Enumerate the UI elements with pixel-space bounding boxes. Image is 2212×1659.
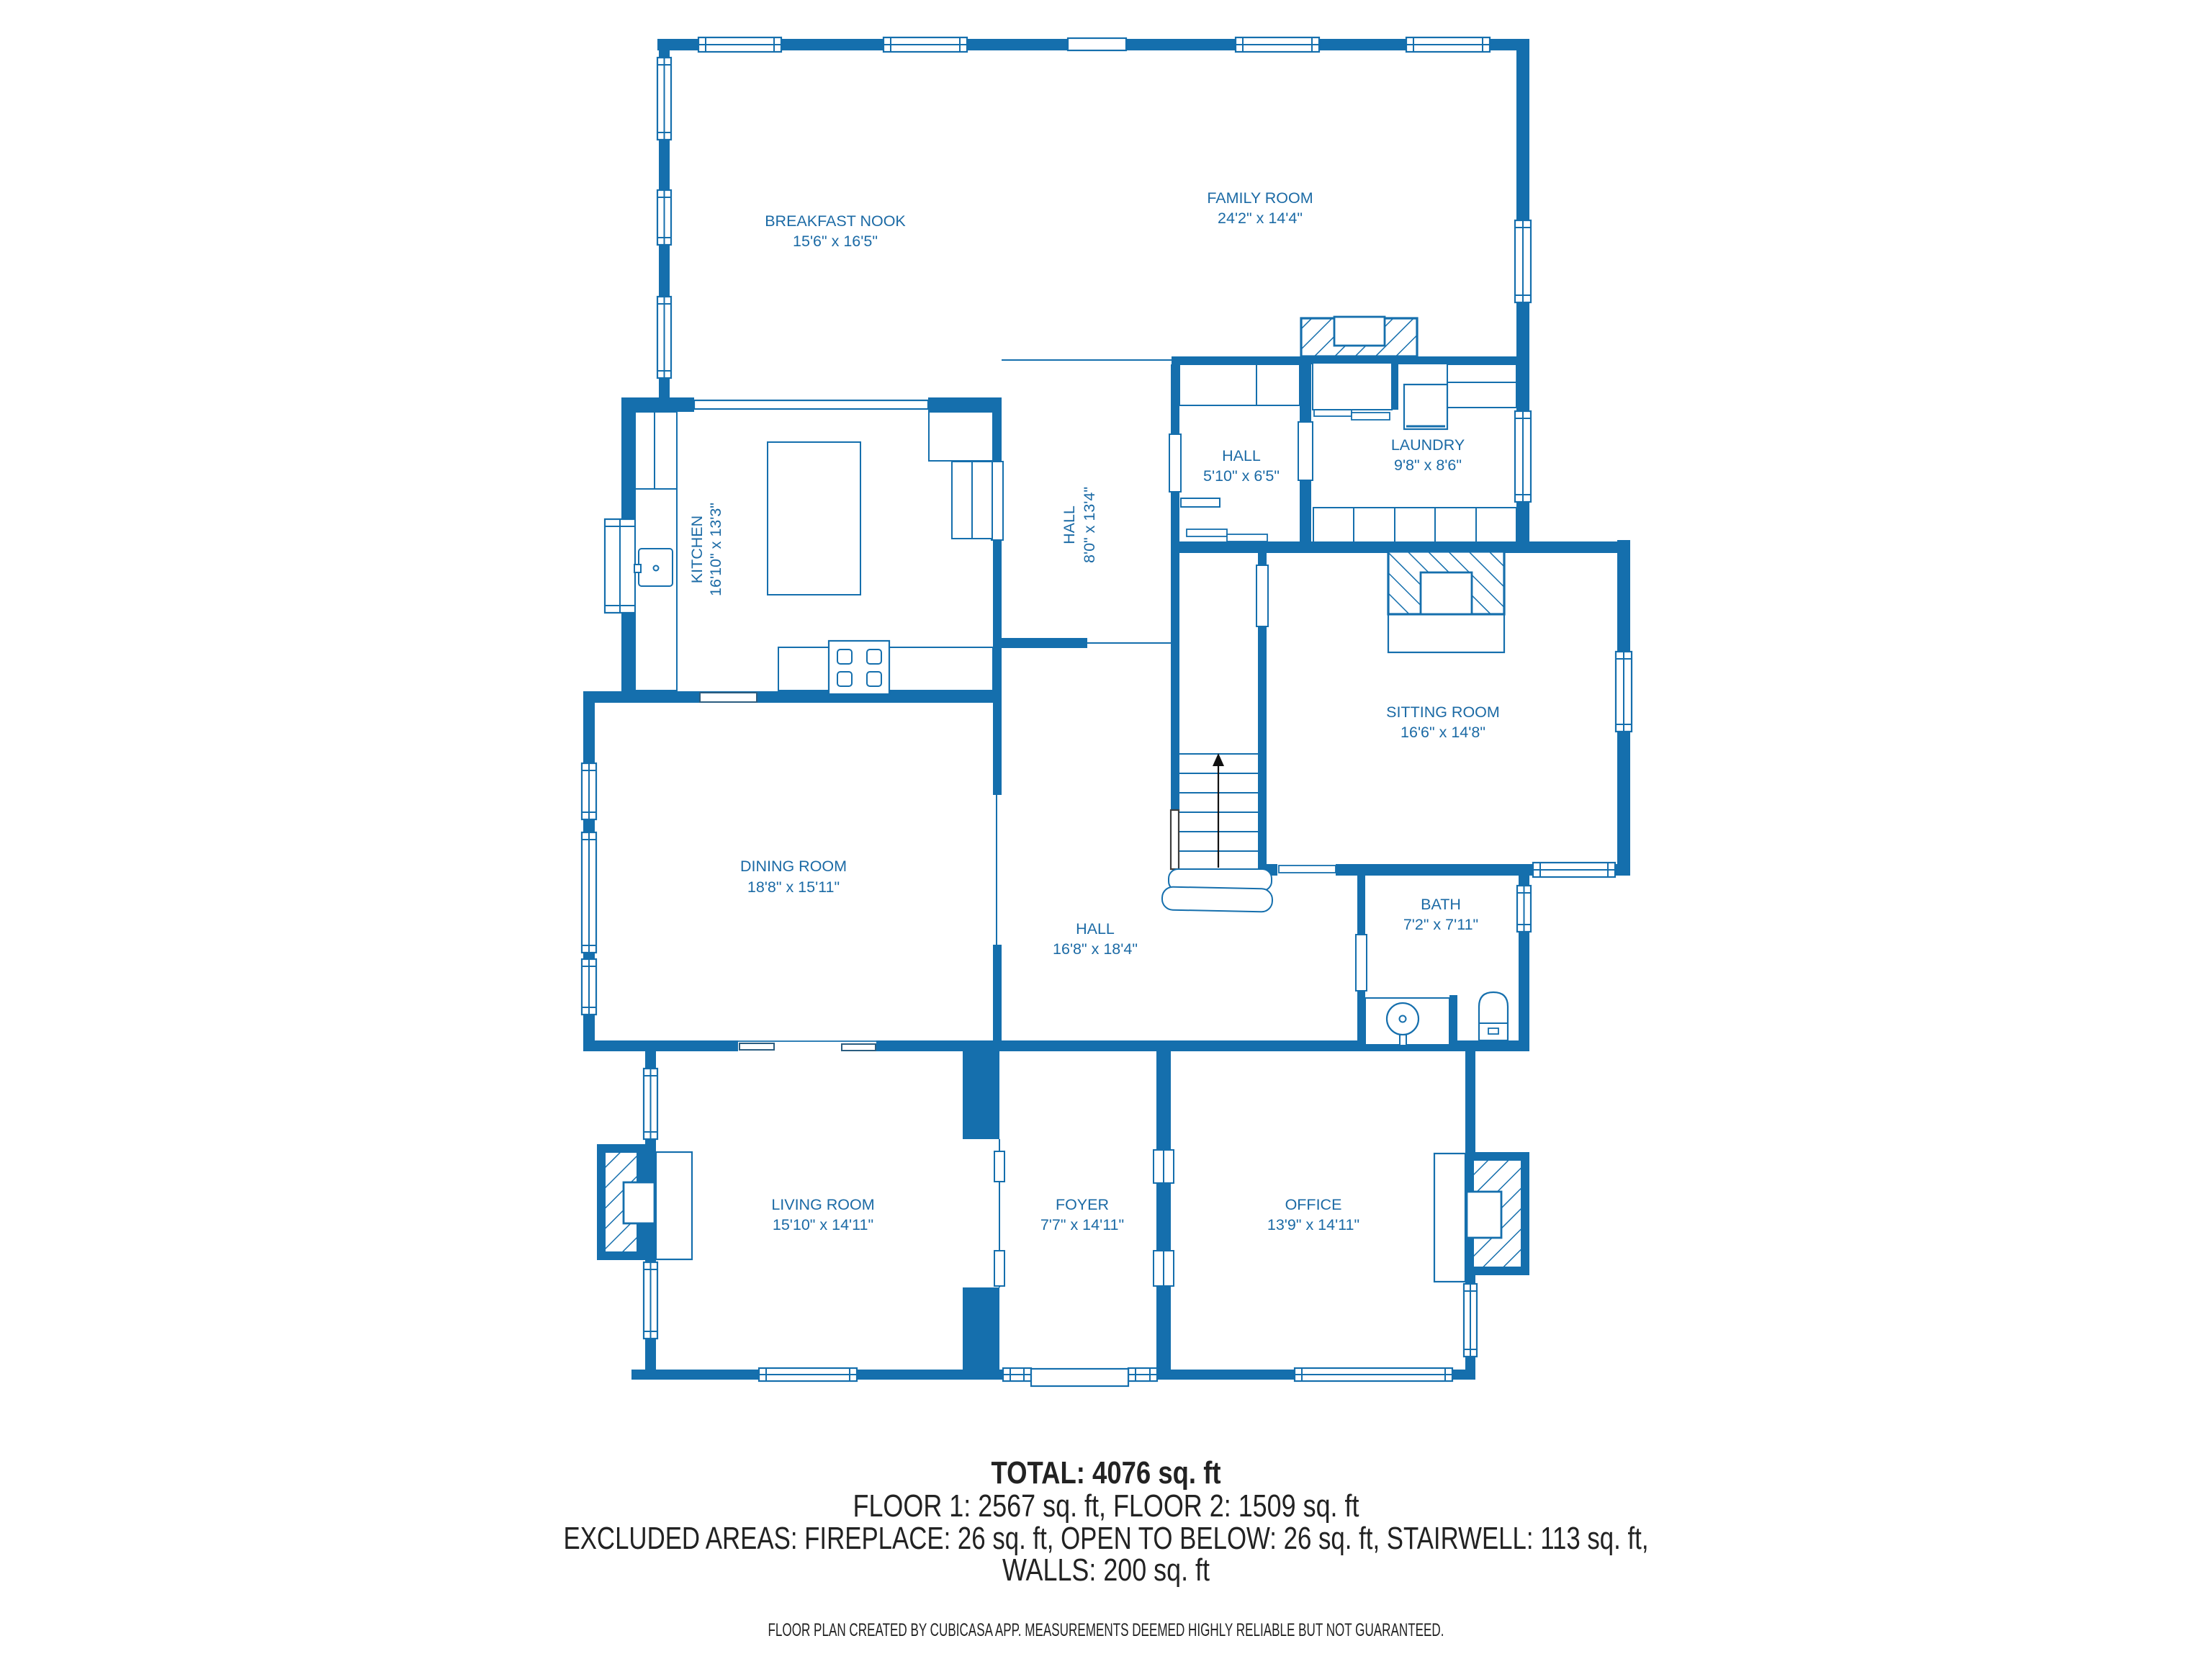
svg-text:HALL: HALL bbox=[1076, 920, 1115, 938]
svg-text:15'10" x 14'11": 15'10" x 14'11" bbox=[773, 1216, 873, 1233]
svg-text:9'8" x 8'6": 9'8" x 8'6" bbox=[1394, 457, 1462, 474]
svg-text:13'9" x 14'11": 13'9" x 14'11" bbox=[1267, 1216, 1359, 1233]
svg-text:FOYER: FOYER bbox=[1056, 1196, 1109, 1213]
svg-text:HALL: HALL bbox=[1222, 447, 1261, 464]
svg-text:16'6" x 14'8": 16'6" x 14'8" bbox=[1401, 724, 1485, 741]
svg-text:FAMILY ROOM: FAMILY ROOM bbox=[1207, 189, 1313, 207]
svg-text:15'6" x 16'5": 15'6" x 16'5" bbox=[793, 233, 878, 250]
svg-text:KITCHEN: KITCHEN bbox=[688, 516, 706, 583]
svg-text:FLOOR PLAN CREATED BY CUBICASA: FLOOR PLAN CREATED BY CUBICASA APP. MEAS… bbox=[768, 1620, 1444, 1640]
svg-text:DINING ROOM: DINING ROOM bbox=[740, 858, 847, 875]
svg-text:SITTING ROOM: SITTING ROOM bbox=[1386, 703, 1500, 721]
svg-text:FLOOR 1: 2567 sq. ft, FLOOR 2:: FLOOR 1: 2567 sq. ft, FLOOR 2: 1509 sq. … bbox=[853, 1488, 1359, 1524]
svg-text:BATH: BATH bbox=[1421, 896, 1461, 913]
svg-text:LAUNDRY: LAUNDRY bbox=[1391, 436, 1465, 454]
svg-text:24'2" x 14'4": 24'2" x 14'4" bbox=[1218, 210, 1303, 227]
svg-text:5'10" x 6'5": 5'10" x 6'5" bbox=[1203, 467, 1280, 485]
svg-text:BREAKFAST NOOK: BREAKFAST NOOK bbox=[765, 212, 906, 230]
svg-text:EXCLUDED AREAS: FIREPLACE: 26: EXCLUDED AREAS: FIREPLACE: 26 sq. ft, OP… bbox=[564, 1521, 1649, 1556]
svg-text:HALL: HALL bbox=[1061, 505, 1078, 544]
svg-text:18'8" x 15'11": 18'8" x 15'11" bbox=[747, 878, 840, 896]
svg-text:7'2" x 7'11": 7'2" x 7'11" bbox=[1403, 916, 1478, 933]
svg-text:OFFICE: OFFICE bbox=[1285, 1196, 1342, 1213]
svg-text:16'8" x 18'4": 16'8" x 18'4" bbox=[1053, 940, 1138, 958]
svg-text:TOTAL: 4076 sq. ft: TOTAL: 4076 sq. ft bbox=[992, 1455, 1221, 1491]
svg-text:WALLS: 200 sq. ft: WALLS: 200 sq. ft bbox=[1002, 1552, 1210, 1588]
svg-text:LIVING ROOM: LIVING ROOM bbox=[771, 1196, 874, 1213]
svg-text:16'10" x 13'3": 16'10" x 13'3" bbox=[707, 503, 724, 596]
svg-text:8'0" x 13'4": 8'0" x 13'4" bbox=[1081, 487, 1098, 563]
svg-text:7'7" x 14'11": 7'7" x 14'11" bbox=[1040, 1216, 1124, 1233]
